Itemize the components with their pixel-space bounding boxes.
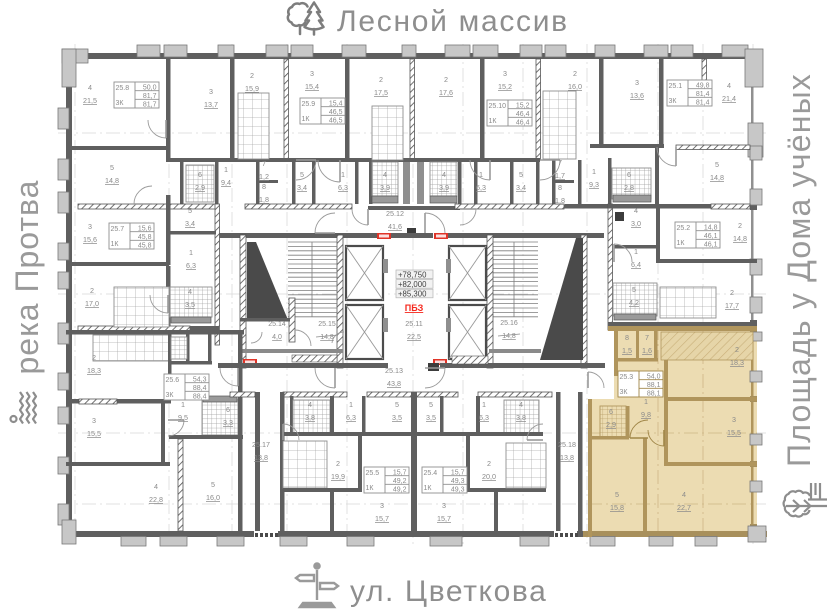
svg-text:1К: 1К xyxy=(302,116,311,123)
svg-text:6,3: 6,3 xyxy=(476,183,486,192)
svg-text:81,4: 81,4 xyxy=(696,100,710,107)
svg-text:25.15: 25.15 xyxy=(318,321,336,328)
svg-text:14,8: 14,8 xyxy=(733,234,747,243)
svg-text:6,3: 6,3 xyxy=(186,261,196,270)
svg-text:9,4: 9,4 xyxy=(221,178,231,187)
svg-text:81,7: 81,7 xyxy=(143,93,157,100)
svg-text:25.13: 25.13 xyxy=(385,366,403,375)
svg-text:25.3: 25.3 xyxy=(620,374,634,381)
svg-text:Лесной массив: Лесной массив xyxy=(337,5,569,38)
svg-text:5: 5 xyxy=(715,160,719,169)
svg-text:25.11: 25.11 xyxy=(405,319,422,328)
svg-text:2: 2 xyxy=(90,286,94,295)
svg-text:25.5: 25.5 xyxy=(366,470,380,477)
svg-text:1: 1 xyxy=(592,167,596,176)
svg-text:1,7: 1,7 xyxy=(555,171,565,180)
svg-text:88,1: 88,1 xyxy=(647,391,661,398)
svg-text:22,8: 22,8 xyxy=(149,495,163,504)
svg-text:1К: 1К xyxy=(366,485,375,492)
svg-text:4: 4 xyxy=(188,287,192,296)
svg-text:5: 5 xyxy=(615,490,619,499)
svg-text:5: 5 xyxy=(110,163,114,172)
svg-text:15,7: 15,7 xyxy=(451,469,465,476)
svg-text:7: 7 xyxy=(645,333,649,342)
svg-text:88,1: 88,1 xyxy=(647,382,661,389)
svg-text:15,5: 15,5 xyxy=(727,428,741,437)
svg-text:2: 2 xyxy=(487,459,491,468)
svg-text:3,4: 3,4 xyxy=(185,219,195,228)
svg-text:46,4: 46,4 xyxy=(516,120,530,127)
svg-text:3,4: 3,4 xyxy=(297,183,307,192)
svg-text:49,3: 49,3 xyxy=(451,487,465,494)
svg-text:3: 3 xyxy=(635,78,639,87)
svg-text:6,4: 6,4 xyxy=(631,260,641,269)
svg-text:2: 2 xyxy=(92,353,96,362)
svg-text:25.4: 25.4 xyxy=(424,470,438,477)
svg-text:49,2: 49,2 xyxy=(393,487,407,494)
svg-text:3,9: 3,9 xyxy=(439,183,449,192)
svg-text:46,4: 46,4 xyxy=(516,111,530,118)
svg-text:25.18: 25.18 xyxy=(558,440,576,449)
svg-text:6: 6 xyxy=(609,407,613,416)
svg-text:2: 2 xyxy=(738,221,742,230)
svg-text:15,7: 15,7 xyxy=(375,514,389,523)
svg-text:25.9: 25.9 xyxy=(302,101,316,108)
svg-text:5: 5 xyxy=(632,285,636,294)
svg-text:15,4: 15,4 xyxy=(329,100,343,107)
svg-text:1: 1 xyxy=(189,248,193,257)
svg-text:15,6: 15,6 xyxy=(138,225,152,232)
svg-text:4: 4 xyxy=(383,170,387,179)
svg-text:3,9: 3,9 xyxy=(380,183,390,192)
svg-text:8: 8 xyxy=(262,182,266,191)
svg-text:8: 8 xyxy=(625,333,629,342)
svg-text:25.8: 25.8 xyxy=(116,85,130,92)
svg-text:1,5: 1,5 xyxy=(622,346,632,355)
svg-text:16,0: 16,0 xyxy=(206,493,220,502)
svg-text:49,2: 49,2 xyxy=(393,478,407,485)
svg-text:6,3: 6,3 xyxy=(479,413,489,422)
svg-text:8: 8 xyxy=(558,183,562,192)
svg-text:14,8: 14,8 xyxy=(704,224,718,231)
svg-text:1: 1 xyxy=(224,165,228,174)
svg-text:3К: 3К xyxy=(166,392,175,399)
svg-text:3: 3 xyxy=(503,69,507,78)
svg-text:5: 5 xyxy=(211,480,215,489)
svg-text:25.12: 25.12 xyxy=(386,209,404,218)
svg-text:15,4: 15,4 xyxy=(305,82,319,91)
svg-text:15,2: 15,2 xyxy=(516,102,530,109)
svg-text:2: 2 xyxy=(336,459,340,468)
svg-text:3,8: 3,8 xyxy=(516,413,526,422)
svg-text:15,7: 15,7 xyxy=(393,469,407,476)
svg-text:река Протва: река Протва xyxy=(9,180,45,375)
svg-text:13,7: 13,7 xyxy=(204,100,218,109)
svg-text:18,3: 18,3 xyxy=(730,358,744,367)
svg-text:54,0: 54,0 xyxy=(647,373,661,380)
svg-text:4: 4 xyxy=(682,490,686,499)
svg-text:17,5: 17,5 xyxy=(374,88,388,97)
svg-text:14,8: 14,8 xyxy=(320,334,334,341)
svg-text:25.16: 25.16 xyxy=(500,320,518,327)
svg-text:3,5: 3,5 xyxy=(185,300,195,309)
svg-text:5: 5 xyxy=(395,400,399,409)
svg-text:49,8: 49,8 xyxy=(696,82,710,89)
svg-text:1: 1 xyxy=(181,400,185,409)
svg-text:3,5: 3,5 xyxy=(426,413,436,422)
svg-text:2: 2 xyxy=(444,75,448,84)
svg-text:1: 1 xyxy=(341,170,345,179)
svg-text:3: 3 xyxy=(92,416,96,425)
svg-text:25.1: 25.1 xyxy=(669,83,683,90)
svg-text:4: 4 xyxy=(727,81,731,90)
svg-text:3: 3 xyxy=(310,69,314,78)
svg-text:14,8: 14,8 xyxy=(502,333,516,340)
svg-text:19,9: 19,9 xyxy=(331,472,345,481)
svg-text:1: 1 xyxy=(479,170,483,179)
svg-text:25.7: 25.7 xyxy=(111,226,125,233)
svg-text:+78,750: +78,750 xyxy=(398,270,427,279)
svg-text:1,6: 1,6 xyxy=(642,346,652,355)
svg-text:4: 4 xyxy=(634,206,638,215)
svg-text:14,8: 14,8 xyxy=(710,173,724,182)
svg-text:88,4: 88,4 xyxy=(193,385,207,392)
svg-text:3,8: 3,8 xyxy=(305,413,315,422)
svg-text:1К: 1К xyxy=(677,240,686,247)
svg-text:1,8: 1,8 xyxy=(555,196,565,205)
svg-text:5: 5 xyxy=(429,400,433,409)
svg-text:21,4: 21,4 xyxy=(722,94,736,103)
svg-text:46,5: 46,5 xyxy=(329,118,343,125)
svg-text:5: 5 xyxy=(188,206,192,215)
svg-text:17,6: 17,6 xyxy=(439,88,453,97)
svg-text:2,9: 2,9 xyxy=(195,183,205,192)
svg-text:3,4: 3,4 xyxy=(516,183,526,192)
svg-text:ПБЗ: ПБЗ xyxy=(405,303,424,313)
svg-text:1К: 1К xyxy=(111,241,120,248)
svg-text:2: 2 xyxy=(379,75,383,84)
svg-text:18,3: 18,3 xyxy=(87,366,101,375)
svg-text:15,9: 15,9 xyxy=(245,84,259,93)
svg-text:5: 5 xyxy=(519,170,523,179)
svg-text:6,3: 6,3 xyxy=(346,413,356,422)
svg-text:25.10: 25.10 xyxy=(489,103,507,110)
svg-text:25.2: 25.2 xyxy=(677,225,691,232)
svg-text:13,8: 13,8 xyxy=(254,453,268,462)
svg-text:4: 4 xyxy=(154,482,158,491)
svg-text:6,3: 6,3 xyxy=(338,183,348,192)
svg-text:3,0: 3,0 xyxy=(631,219,641,228)
svg-text:2,8: 2,8 xyxy=(624,183,634,192)
svg-text:13,6: 13,6 xyxy=(630,91,644,100)
svg-text:22,7: 22,7 xyxy=(677,503,691,512)
svg-text:15,2: 15,2 xyxy=(498,82,512,91)
svg-text:3: 3 xyxy=(442,501,446,510)
svg-text:4: 4 xyxy=(308,400,312,409)
svg-text:41,6: 41,6 xyxy=(388,222,402,231)
svg-text:14,8: 14,8 xyxy=(105,176,119,185)
svg-text:15,6: 15,6 xyxy=(83,235,97,244)
svg-text:45,8: 45,8 xyxy=(138,234,152,241)
svg-text:46,1: 46,1 xyxy=(704,233,718,240)
svg-text:45,8: 45,8 xyxy=(138,243,152,250)
svg-text:ул. Цветкова: ул. Цветкова xyxy=(350,575,547,608)
svg-text:4: 4 xyxy=(88,83,92,92)
svg-text:4,0: 4,0 xyxy=(272,334,282,341)
svg-text:1: 1 xyxy=(634,247,638,256)
svg-text:2: 2 xyxy=(250,71,254,80)
svg-text:15,5: 15,5 xyxy=(87,429,101,438)
svg-text:25.14: 25.14 xyxy=(268,321,286,328)
svg-text:46,5: 46,5 xyxy=(329,109,343,116)
svg-text:2: 2 xyxy=(573,69,577,78)
svg-text:88,4: 88,4 xyxy=(193,394,207,401)
svg-text:3: 3 xyxy=(732,415,736,424)
svg-text:25.17: 25.17 xyxy=(252,440,270,449)
svg-text:43,8: 43,8 xyxy=(387,379,401,388)
svg-text:3: 3 xyxy=(380,501,384,510)
svg-text:1,8: 1,8 xyxy=(259,195,269,204)
svg-text:16,0: 16,0 xyxy=(568,82,582,91)
svg-text:15,8: 15,8 xyxy=(610,503,624,512)
svg-text:Площадь у Дома учёных: Площадь у Дома учёных xyxy=(781,73,817,467)
svg-text:49,3: 49,3 xyxy=(451,478,465,485)
svg-text:21,5: 21,5 xyxy=(83,96,97,105)
svg-text:3,5: 3,5 xyxy=(392,413,402,422)
svg-text:1К: 1К xyxy=(424,485,433,492)
svg-text:20,0: 20,0 xyxy=(482,472,496,481)
svg-text:9,8: 9,8 xyxy=(641,410,651,419)
svg-text:3К: 3К xyxy=(620,389,629,396)
svg-text:+82,000: +82,000 xyxy=(398,280,427,289)
svg-text:3К: 3К xyxy=(116,100,125,107)
svg-text:13,8: 13,8 xyxy=(560,453,574,462)
svg-text:9,5: 9,5 xyxy=(178,413,188,422)
svg-text:4: 4 xyxy=(442,170,446,179)
svg-text:25.6: 25.6 xyxy=(166,377,180,384)
svg-text:3: 3 xyxy=(209,87,213,96)
svg-text:22,5: 22,5 xyxy=(407,332,421,341)
svg-text:6: 6 xyxy=(627,170,631,179)
svg-text:17,0: 17,0 xyxy=(85,299,99,308)
svg-text:17,7: 17,7 xyxy=(725,301,739,310)
svg-text:2: 2 xyxy=(735,345,739,354)
svg-text:7: 7 xyxy=(558,158,562,167)
svg-text:5: 5 xyxy=(300,170,304,179)
svg-text:4: 4 xyxy=(519,400,523,409)
svg-text:50,0: 50,0 xyxy=(143,84,157,91)
svg-text:81,4: 81,4 xyxy=(696,91,710,98)
svg-text:1: 1 xyxy=(644,397,648,406)
svg-text:+85,300: +85,300 xyxy=(398,290,427,299)
svg-text:1К: 1К xyxy=(489,118,498,125)
svg-text:15,7: 15,7 xyxy=(437,514,451,523)
svg-text:1: 1 xyxy=(482,400,486,409)
svg-text:9,3: 9,3 xyxy=(589,180,599,189)
svg-text:3К: 3К xyxy=(669,98,678,105)
svg-text:46,1: 46,1 xyxy=(704,242,718,249)
svg-text:1: 1 xyxy=(349,400,353,409)
svg-text:2: 2 xyxy=(730,288,734,297)
svg-text:6: 6 xyxy=(198,170,202,179)
svg-text:4,2: 4,2 xyxy=(629,298,639,307)
svg-text:54,3: 54,3 xyxy=(193,376,207,383)
svg-text:3: 3 xyxy=(88,222,92,231)
svg-text:81,7: 81,7 xyxy=(143,102,157,109)
svg-text:7: 7 xyxy=(262,159,266,168)
svg-text:6: 6 xyxy=(226,405,230,414)
svg-text:2,9: 2,9 xyxy=(606,420,616,429)
svg-text:1,2: 1,2 xyxy=(259,172,269,181)
svg-text:3,3: 3,3 xyxy=(223,418,233,427)
